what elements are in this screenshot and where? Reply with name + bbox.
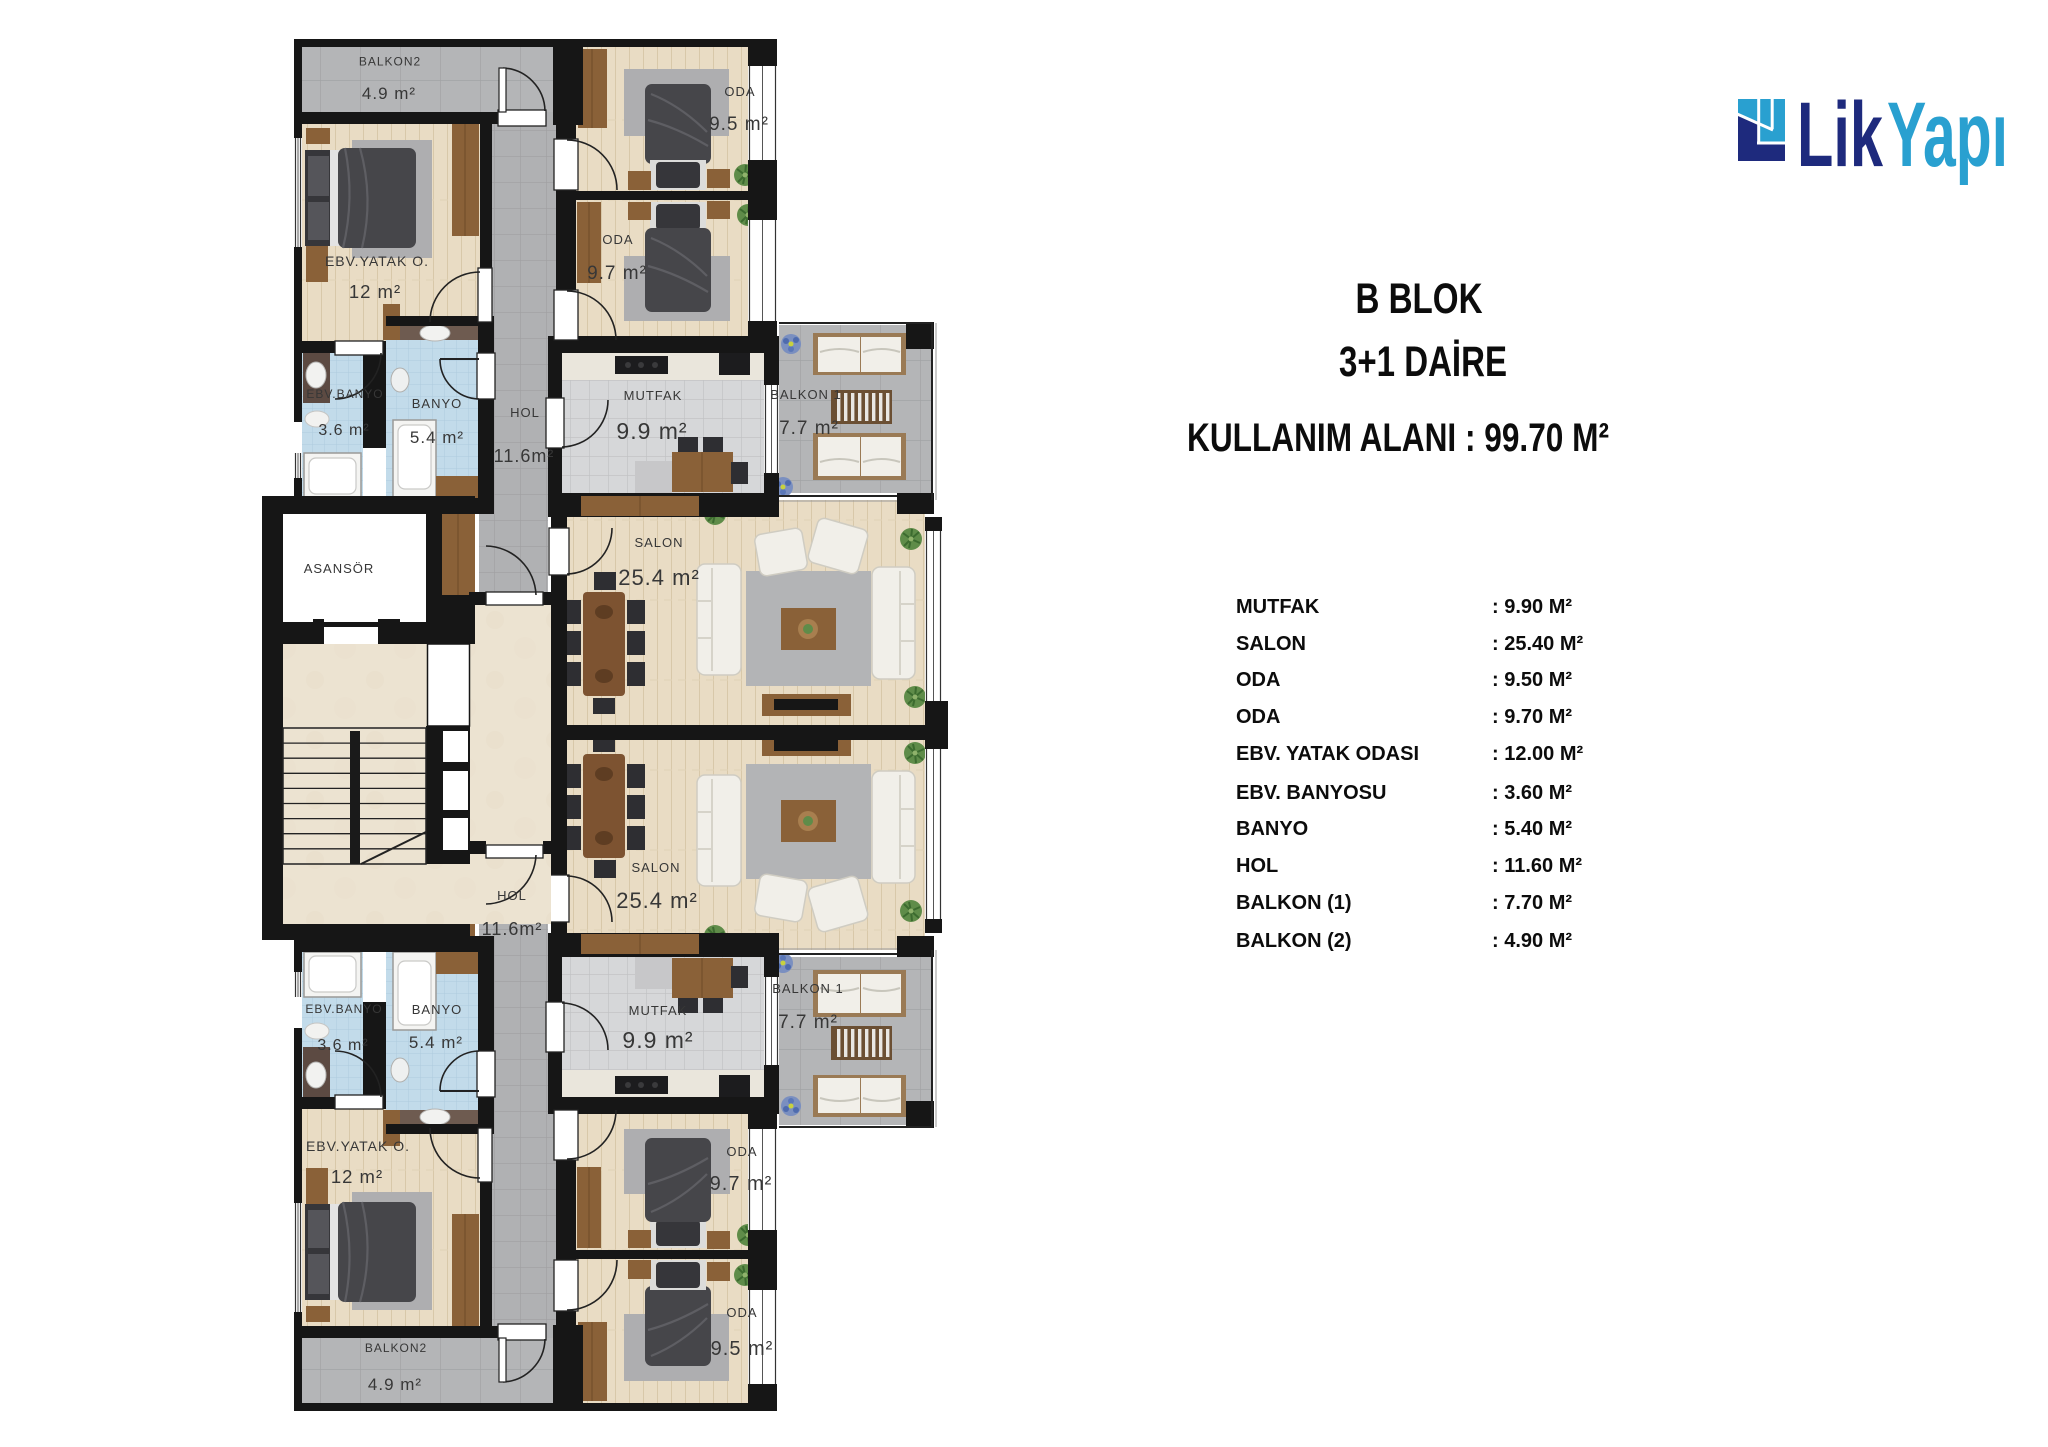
svg-text:7.7 m²: 7.7 m² (779, 418, 839, 439)
svg-text:ODA: ODA (724, 84, 755, 99)
svg-text:EBV.BANYO: EBV.BANYO (305, 1002, 382, 1016)
svg-text:: 5.40 M²: : 5.40 M² (1492, 818, 1572, 840)
svg-text:EBV. YATAK ODASI: EBV. YATAK ODASI (1236, 743, 1419, 765)
svg-text:: 7.70 M²: : 7.70 M² (1492, 892, 1572, 914)
svg-text:3.6 m²: 3.6 m² (318, 422, 369, 439)
svg-text:HOL: HOL (510, 405, 540, 420)
svg-text:BANYO: BANYO (412, 1002, 463, 1017)
svg-text:3+1 DAİRE: 3+1 DAİRE (1339, 339, 1507, 386)
svg-text:Lik: Lik (1797, 84, 1884, 186)
svg-text:EBV.BANYO: EBV.BANYO (306, 387, 383, 401)
svg-text:9.5 m²: 9.5 m² (709, 114, 769, 135)
svg-text:BALKON 1: BALKON 1 (772, 981, 844, 996)
svg-text:9.7 m²: 9.7 m² (710, 1173, 773, 1195)
svg-text:: 4.90 M²: : 4.90 M² (1492, 930, 1572, 952)
svg-text:ODA: ODA (726, 1144, 757, 1159)
svg-text:ODA: ODA (726, 1305, 757, 1320)
svg-text:SALON: SALON (634, 535, 683, 550)
svg-text:BANYO: BANYO (412, 396, 463, 411)
svg-text:9.5 m²: 9.5 m² (711, 1338, 774, 1360)
svg-text:9.7 m²: 9.7 m² (587, 263, 647, 284)
svg-text:12 m²: 12 m² (349, 281, 401, 302)
svg-text:KULLANIM ALANI : 99.70 M²: KULLANIM ALANI : 99.70 M² (1187, 416, 1609, 460)
svg-text:: 9.90 M²: : 9.90 M² (1492, 596, 1572, 618)
svg-text:BALKON (2): BALKON (2) (1236, 930, 1352, 952)
svg-text:: 3.60 M²: : 3.60 M² (1492, 782, 1572, 804)
svg-text:MUTFAK: MUTFAK (624, 388, 683, 403)
svg-text:MUTFAK: MUTFAK (629, 1003, 688, 1018)
svg-text:SALON: SALON (1236, 633, 1306, 655)
svg-text:ODA: ODA (1236, 706, 1280, 728)
svg-text:9.9 m²: 9.9 m² (622, 1027, 693, 1053)
svg-text:HOL: HOL (497, 888, 527, 903)
svg-text:MUTFAK: MUTFAK (1236, 596, 1320, 618)
svg-text:: 12.00 M²: : 12.00 M² (1492, 743, 1583, 765)
svg-text:: 11.60 M²: : 11.60 M² (1492, 855, 1582, 877)
svg-text:BALKON (1): BALKON (1) (1236, 892, 1352, 914)
svg-text:HOL: HOL (1236, 855, 1278, 877)
svg-text:: 9.50 M²: : 9.50 M² (1492, 669, 1572, 691)
svg-text:BALKON2: BALKON2 (365, 1341, 427, 1355)
svg-text:7.7 m²: 7.7 m² (778, 1012, 838, 1033)
svg-text:EBV.YATAK O.: EBV.YATAK O. (306, 1138, 410, 1154)
svg-text:EBV.YATAK O.: EBV.YATAK O. (325, 253, 429, 269)
svg-text:EBV. BANYOSU: EBV. BANYOSU (1236, 782, 1386, 804)
svg-text:25.4 m²: 25.4 m² (618, 565, 700, 590)
svg-text:Yapı: Yapı (1887, 84, 2008, 186)
svg-text:ODA: ODA (1236, 669, 1280, 691)
svg-text:B BLOK: B BLOK (1356, 276, 1483, 323)
svg-text:9.9 m²: 9.9 m² (616, 418, 687, 444)
svg-text:BANYO: BANYO (1236, 818, 1308, 840)
svg-text:ASANSÖR: ASANSÖR (304, 561, 375, 576)
svg-text:11.6m²: 11.6m² (482, 919, 543, 939)
svg-text:: 9.70 M²: : 9.70 M² (1492, 706, 1572, 728)
svg-text:4.9 m²: 4.9 m² (362, 84, 416, 103)
svg-text:25.4 m²: 25.4 m² (616, 888, 698, 913)
svg-text:5.4 m²: 5.4 m² (410, 428, 464, 447)
svg-text:11.6m²: 11.6m² (494, 446, 555, 466)
svg-text:12 m²: 12 m² (331, 1166, 383, 1187)
svg-text:SALON: SALON (631, 860, 680, 875)
svg-text:BALKON2: BALKON2 (359, 55, 421, 69)
svg-text:ODA: ODA (602, 232, 633, 247)
svg-text:5.4 m²: 5.4 m² (409, 1033, 463, 1052)
svg-text:: 25.40 M²: : 25.40 M² (1492, 633, 1583, 655)
svg-text:4.9 m²: 4.9 m² (368, 1375, 422, 1394)
svg-text:3.6 m²: 3.6 m² (317, 1037, 368, 1054)
svg-text:BALKON 1: BALKON 1 (770, 387, 842, 402)
